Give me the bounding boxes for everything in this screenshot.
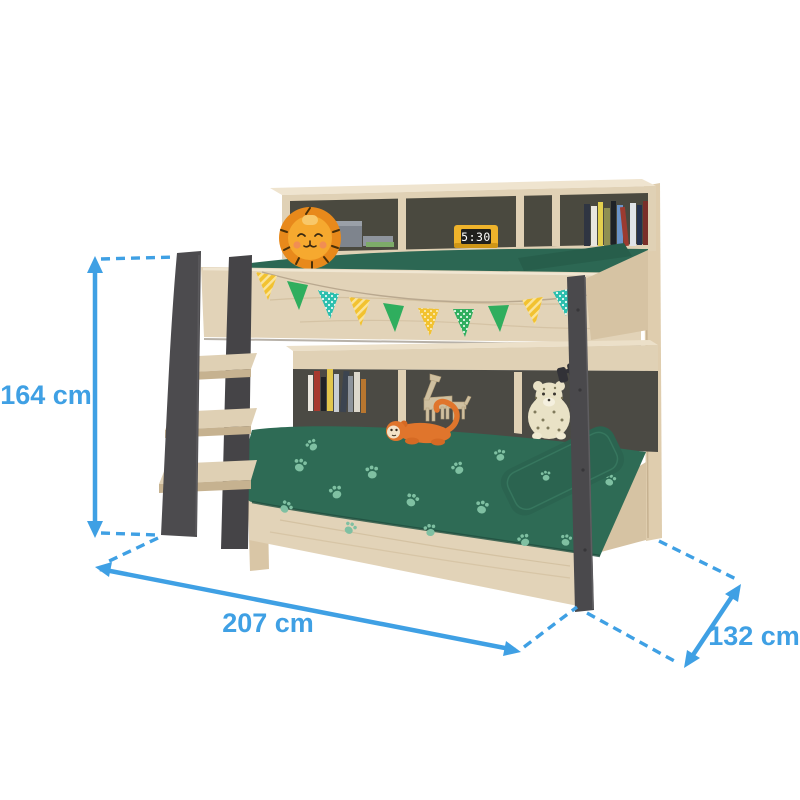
length-right-extension (524, 607, 577, 647)
height-top-extension (101, 257, 176, 259)
depth-front-extension (587, 613, 678, 663)
depth-dimension-label: 132 cm (708, 621, 800, 651)
arrowhead-up-icon (87, 256, 103, 273)
arrowhead-down-icon (87, 521, 103, 538)
depth-back-extension (659, 541, 736, 579)
book-spines-mid (308, 369, 366, 413)
length-dimension-label: 207 cm (222, 608, 314, 638)
shelf-divider (552, 192, 560, 246)
height-bottom-extension (101, 533, 158, 535)
length-left-extension (105, 538, 158, 563)
lion-plush-icon (279, 207, 341, 269)
shelf-divider (516, 193, 524, 247)
arrowhead-up-right-icon (725, 584, 741, 602)
arrowhead-left-icon (95, 562, 112, 577)
shelf-divider (398, 196, 406, 250)
mid-shelf-divider (514, 372, 522, 434)
book-spines-top (584, 201, 648, 246)
ladder-front-stringer (161, 251, 201, 537)
arrowhead-right-icon (503, 641, 521, 656)
digital-clock-icon: 5:30 (454, 225, 498, 248)
clock-time-label: 5:30 (461, 230, 491, 244)
bunk-bed-illustration: 5:30 (159, 179, 662, 612)
product-dimensions-diagram: 5:30 (0, 0, 800, 800)
bunk-bed-diagram-canvas: 5:30 (0, 0, 800, 800)
height-dimension-label: 164 cm (0, 380, 92, 410)
